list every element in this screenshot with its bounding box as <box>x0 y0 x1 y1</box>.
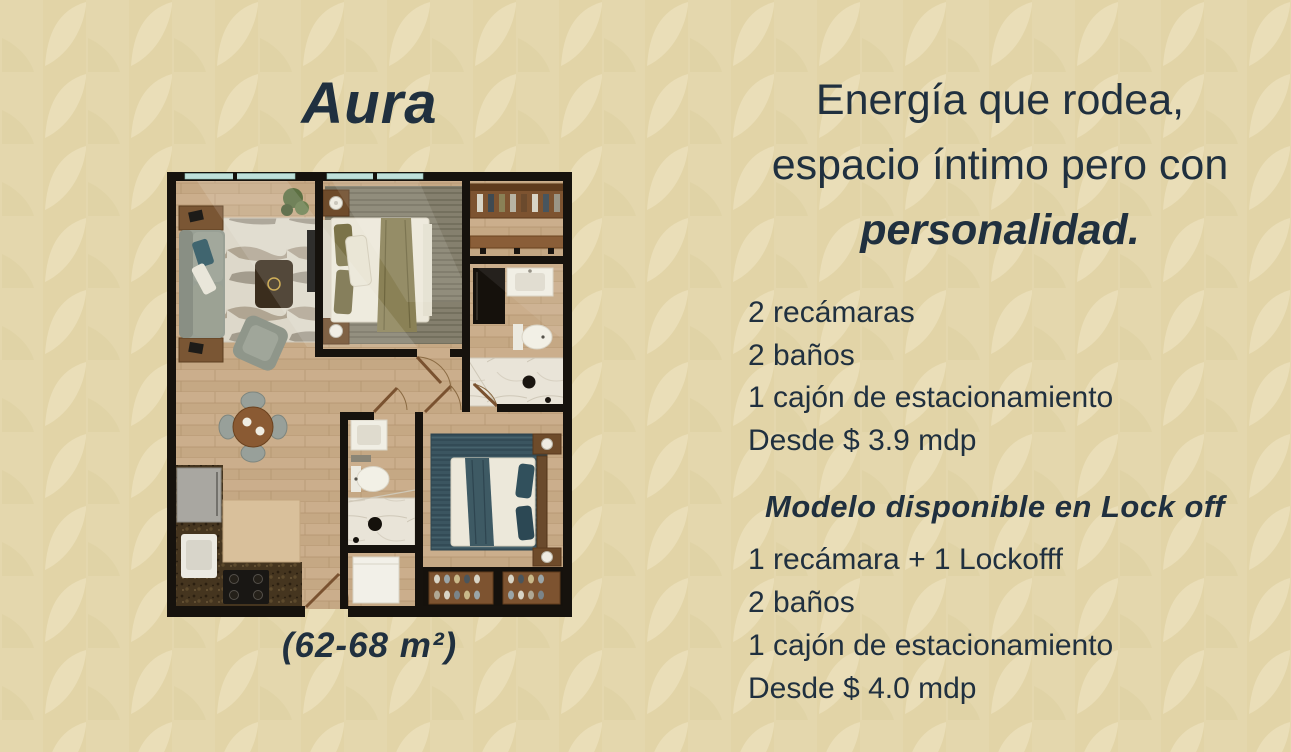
brochure-slide: Aura <box>0 0 1291 752</box>
prep-counter <box>223 500 300 562</box>
toilet <box>522 325 552 349</box>
bathroom2-bottom-wall <box>340 545 423 553</box>
model-title: Aura <box>167 70 572 137</box>
headboard <box>537 456 547 548</box>
area-caption: (62-68 m²) <box>167 626 572 666</box>
bathroom2-left-wall <box>340 412 348 609</box>
list-item: 2 recámaras <box>748 292 1113 335</box>
list-item: 1 cajón de estacionamiento <box>748 624 1113 667</box>
standard-feature-list: 2 recámaras 2 baños 1 cajón de estaciona… <box>748 292 1113 462</box>
stove <box>223 570 269 604</box>
list-item: Desde $ 4.0 mdp <box>748 667 1113 710</box>
list-item: 2 baños <box>748 581 1113 624</box>
lockoff-feature-list: 1 recámara + 1 Lockofff 2 baños 1 cajón … <box>748 538 1113 710</box>
teal-blanket <box>465 458 494 546</box>
living-window <box>185 174 295 180</box>
list-item: 1 cajón de estacionamiento <box>748 377 1113 420</box>
bedroom1-bottom-wall <box>315 349 417 357</box>
closet-bottom-wall <box>470 256 564 264</box>
headline-line1: Energía que rodea, <box>718 68 1282 133</box>
headline-line2: espacio íntimo pero con <box>718 133 1282 198</box>
fridge <box>177 468 221 522</box>
list-item: 2 baños <box>748 335 1113 378</box>
floor-plan-image <box>167 172 572 617</box>
list-item: Desde $ 3.9 mdp <box>748 420 1113 463</box>
dining-table <box>233 407 273 447</box>
bathroom2-right-wall <box>415 412 423 609</box>
closet-bench <box>470 236 564 248</box>
lockoff-heading: Modelo disponible en Lock off <box>765 489 1225 525</box>
list-item: 1 recámara + 1 Lockofff <box>748 538 1113 581</box>
utility-closet <box>353 557 399 603</box>
headline-line3: personalidad. <box>718 198 1282 263</box>
shelf <box>351 455 371 462</box>
toilet <box>357 467 389 492</box>
headline: Energía que rodea, espacio íntimo pero c… <box>718 68 1282 263</box>
bedroom1-right-wall <box>462 181 470 412</box>
floor-plan-svg <box>167 172 572 617</box>
bathroom2-top-wall <box>340 412 374 420</box>
bedroom1-left-wall <box>315 181 323 357</box>
bathroom1-bottom-wall <box>497 404 572 412</box>
